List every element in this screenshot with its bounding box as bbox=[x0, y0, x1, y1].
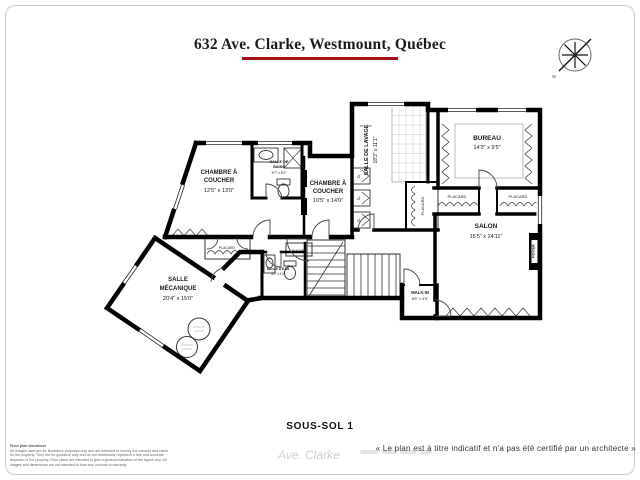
duct-label-2: d bbox=[357, 196, 360, 201]
walkin-name: WALK-IN bbox=[411, 290, 429, 295]
disclaimer-line: images and dimensions are not intended t… bbox=[10, 463, 225, 468]
compass-north-label: N bbox=[552, 74, 555, 79]
floor-plan-page: 632 Ave. Clarke, Westmount, Québec N bbox=[0, 0, 640, 480]
floor-plan-svg: N bbox=[0, 0, 640, 480]
placard-laundry: PLACARD bbox=[420, 196, 425, 215]
mechanical-tanks bbox=[177, 318, 211, 358]
laundry-tiles bbox=[392, 106, 426, 182]
bureau-name: BUREAU bbox=[473, 135, 501, 142]
walkin-dims: 6'5" x 4'5" bbox=[412, 297, 429, 301]
placard-bureau-left: PLACARD bbox=[448, 194, 467, 199]
bureau-dims: 14'3" x 9'5" bbox=[473, 145, 500, 151]
salle-d-eau-name: SALLE D'EAU bbox=[267, 267, 290, 271]
watermark: Ave. Clarke bbox=[278, 448, 340, 462]
bains-name-1: SALLE DE bbox=[270, 160, 289, 164]
closets bbox=[205, 182, 538, 259]
foyer-label: FOYER bbox=[531, 244, 536, 258]
bains-name-2: BAINS bbox=[273, 165, 285, 169]
chambre1-name-2: COUCHER bbox=[204, 178, 235, 184]
salle-d-eau-dims: 5'2" x 4'5" bbox=[271, 272, 285, 276]
staircase bbox=[307, 240, 400, 298]
salon-dims: 15'5" x 24'11" bbox=[470, 234, 503, 240]
duct-label-1: d bbox=[357, 174, 360, 179]
mecanique-dims: 20'4" x 15'0" bbox=[163, 296, 193, 302]
floor-label: SOUS-SOL 1 bbox=[0, 421, 640, 432]
chambre2-name-2: COUCHER bbox=[313, 189, 344, 195]
disclaimer: Floor plan disclaimer All images used ar… bbox=[10, 444, 225, 467]
compass-icon: N bbox=[552, 39, 591, 79]
placard-hall: PLACARD bbox=[219, 246, 236, 250]
bains-dims: 5'7" x 8'3" bbox=[272, 171, 288, 175]
placard-bureau-right: PLACARD bbox=[509, 194, 528, 199]
small-dim-label: 4'1" x 1'0" bbox=[360, 124, 372, 128]
duct-boxes bbox=[353, 168, 370, 228]
chambre2-dims: 10'5" x 14'0" bbox=[313, 198, 343, 204]
lavage-dims: 18'3" x 11'1" bbox=[373, 136, 379, 163]
mecanique-name-2: MÉCANIQUE bbox=[160, 284, 197, 292]
placard-stairs: PLACARD bbox=[292, 249, 307, 253]
chambre2-name-1: CHAMBRE À bbox=[310, 180, 347, 187]
chambre1-dims: 12'5" x 13'0" bbox=[204, 188, 234, 194]
lavage-name: SALLE DE LAVAGE bbox=[364, 124, 370, 175]
salon-name: SALON bbox=[475, 223, 498, 230]
certification-note: « Le plan est à titre indicatif et n'a p… bbox=[376, 444, 636, 453]
chambre1-name-1: CHAMBRE À bbox=[201, 169, 238, 176]
bureau-rug bbox=[455, 124, 523, 178]
mecanique-name-1: SALLE bbox=[168, 277, 188, 283]
